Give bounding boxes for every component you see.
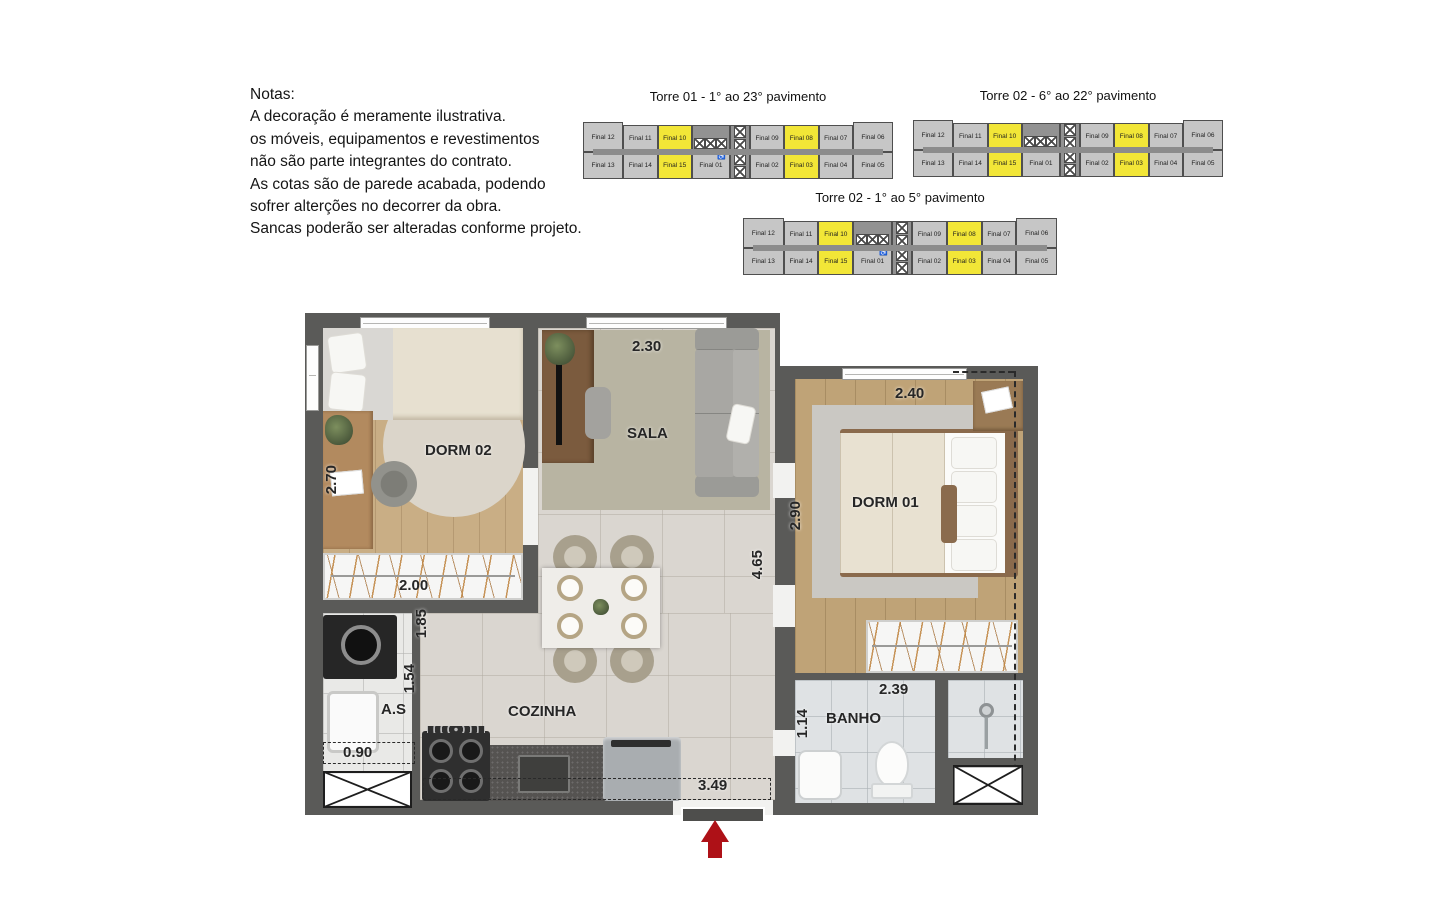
plate (557, 613, 583, 639)
unit-label: Final 12 (752, 230, 775, 237)
unit-label: Final 11 (959, 133, 982, 140)
tower-row: Final 12Final 11Final 10Final 09Final 08… (913, 123, 1223, 150)
tower3-title: Torre 02 - 1° ao 5° pavimento (743, 190, 1057, 205)
unit-cell: Final 02 (1080, 150, 1114, 177)
unit-cell-highlighted: Final 08 (1114, 123, 1148, 150)
stairs-x-icon (1046, 136, 1057, 147)
stairs-cell (692, 125, 730, 152)
pillow (951, 437, 997, 469)
unit-cell: Final 14 (623, 152, 657, 179)
plant-icon (545, 333, 575, 365)
notes-block: Notas: A decoração é meramente ilustrati… (250, 84, 610, 241)
corridor-strip (593, 149, 883, 155)
stairs-x-icon (1035, 136, 1046, 147)
sofa-seat (695, 349, 735, 477)
toilet-bowl (875, 741, 909, 787)
notes-line: As cotas são de parede acabada, podendo (250, 174, 610, 196)
dim-label: 0.90 (343, 744, 372, 761)
unit-cell-highlighted: Final 03 (947, 248, 982, 275)
unit-cell: Final 04 (1149, 150, 1183, 177)
unit-label: Final 10 (993, 133, 1016, 140)
entry-arrow-icon (701, 820, 729, 842)
dim-label: 2.70 (323, 465, 340, 494)
dim-label: 2.39 (879, 681, 908, 698)
unit-label: Final 01 (1029, 160, 1052, 167)
unit-label: Final 07 (824, 135, 847, 142)
unit-cell: ♿Final 01 (853, 248, 892, 275)
unit-label: Final 14 (959, 160, 982, 167)
room-label-dorm02: DORM 02 (425, 442, 492, 459)
unit-label: Final 06 (861, 134, 884, 141)
unit-label: Final 04 (824, 162, 847, 169)
unit-label: Final 04 (987, 258, 1010, 265)
tower1-title: Torre 01 - 1° ao 23° pavimento (583, 89, 893, 104)
unit-cell: Final 06 (853, 122, 893, 152)
dim-label: 2.40 (895, 385, 924, 402)
room-label-dorm01: DORM 01 (852, 494, 919, 511)
elevator-cell (730, 125, 750, 152)
stairs-x-icon (705, 138, 716, 149)
corridor-strip (753, 245, 1047, 251)
window (306, 345, 319, 411)
unit-cell-highlighted: Final 03 (784, 152, 818, 179)
tower1-diagram: Final 12Final 11Final 10Final 09Final 08… (583, 125, 893, 182)
pillow (951, 505, 997, 537)
corridor-strip (923, 147, 1213, 153)
unit-cell-highlighted: Final 10 (988, 123, 1022, 150)
plant-icon (325, 415, 353, 445)
unit-cell: Final 04 (819, 152, 853, 179)
tower-row: Final 12Final 11Final 10Final 09Final 08… (743, 221, 1057, 248)
unit-label: Final 09 (918, 231, 941, 238)
unit-label: Final 09 (755, 135, 778, 142)
shower-head-icon (979, 703, 994, 718)
unit-cell: Final 12 (743, 218, 784, 248)
unit-label: Final 03 (1120, 160, 1143, 167)
unit-cell: Final 07 (1149, 123, 1183, 150)
sofa-armrest (695, 475, 759, 497)
unit-label: Final 10 (663, 135, 686, 142)
plate (621, 613, 647, 639)
unit-label: Final 06 (1025, 230, 1048, 237)
unit-label: Final 13 (752, 258, 775, 265)
dorm01-closet (866, 620, 1018, 673)
unit-label: Final 14 (629, 162, 652, 169)
stairs-x-icon (694, 138, 705, 149)
tower-row: Final 12Final 11Final 10Final 09Final 08… (583, 125, 893, 152)
unit-label: Final 05 (861, 162, 884, 169)
unit-cell: Final 04 (982, 248, 1017, 275)
unit-cell-highlighted: Final 15 (988, 150, 1022, 177)
unit-cell: Final 02 (750, 152, 784, 179)
tower-row: Final 13Final 14Final 15♿Final 01Final 0… (743, 248, 1057, 275)
unit-cell: ♿Final 01 (692, 152, 730, 179)
stove-knobs (427, 726, 485, 733)
unit-label: Final 02 (755, 162, 778, 169)
unit-label: Final 07 (1154, 133, 1177, 140)
projection-dashed-line (1014, 371, 1016, 801)
unit-label: Final 13 (922, 160, 945, 167)
unit-cell: Final 05 (1183, 150, 1223, 177)
unit-label: Final 08 (790, 135, 813, 142)
unit-label: Final 07 (987, 231, 1010, 238)
unit-cell-highlighted: Final 15 (818, 248, 853, 275)
elevator-cell (892, 248, 912, 275)
room-label-cozinha: COZINHA (508, 703, 576, 720)
notes-line: Sancas poderão ser alteradas conforme pr… (250, 218, 610, 240)
floor-plan: DORM 02 SALA DORM 01 COZINHA A.S BANHO 2… (305, 313, 1040, 815)
unit-cell-highlighted: Final 08 (947, 221, 982, 248)
dim-label: 1.85 (413, 609, 430, 638)
unit-label: Final 05 (1191, 160, 1214, 167)
elevator-cell (730, 152, 750, 179)
elevator-cell (1060, 123, 1080, 150)
tower-row: Final 13Final 14Final 15Final 01Final 02… (913, 150, 1223, 177)
stairs-x-icon (878, 234, 889, 245)
door-opening-dorm02 (523, 468, 538, 545)
unit-label: Final 15 (663, 162, 686, 169)
unit-cell: Final 05 (853, 152, 893, 179)
projection-dashed-line (953, 371, 1014, 373)
unit-cell: Final 06 (1183, 120, 1223, 150)
dim-label: 2.90 (787, 501, 804, 530)
table-plant-icon (593, 599, 609, 615)
unit-label: Final 03 (790, 162, 813, 169)
door-opening-bathroom (773, 730, 795, 756)
pillow (951, 471, 997, 503)
elevator-x-icon (734, 126, 746, 138)
unit-cell: Final 13 (913, 150, 953, 177)
room-label-sala: SALA (627, 425, 668, 442)
elevator-x-icon (896, 262, 908, 274)
door-opening (773, 463, 795, 498)
dim-label: 4.65 (749, 550, 766, 579)
stairs-cell (1022, 123, 1060, 150)
tower3-diagram: Final 12Final 11Final 10Final 09Final 08… (743, 221, 1057, 281)
plate (557, 575, 583, 601)
dim-label: 2.30 (632, 338, 661, 355)
elevator-x-icon (1064, 124, 1076, 136)
unit-label: Final 13 (592, 162, 615, 169)
unit-label: Final 01 (861, 258, 884, 265)
unit-cell: Final 12 (583, 122, 623, 152)
unit-cell: Final 12 (913, 120, 953, 150)
pillow (951, 539, 997, 571)
elevator-cell (1060, 150, 1080, 177)
unit-label: Final 10 (824, 231, 847, 238)
shower-arm (985, 717, 988, 749)
unit-label: Final 02 (1085, 160, 1108, 167)
door-opening-dorm01 (773, 585, 795, 627)
unit-label: Final 11 (790, 231, 813, 238)
pillow (327, 332, 368, 375)
bed-runner (941, 485, 957, 543)
tower-row: Final 13Final 14Final 15♿Final 01Final 0… (583, 152, 893, 179)
unit-label: Final 08 (953, 231, 976, 238)
entry-arrow-stem (708, 840, 722, 858)
unit-label: Final 02 (918, 258, 941, 265)
stairs-x-icon (856, 234, 867, 245)
notes-line: os móveis, equipamentos e revestimentos (250, 129, 610, 151)
room-label-banho: BANHO (826, 710, 881, 727)
window (842, 368, 967, 380)
unit-cell: Final 07 (982, 221, 1017, 248)
unit-cell-highlighted: Final 10 (658, 125, 692, 152)
unit-label: Final 12 (922, 132, 945, 139)
unit-cell: Final 07 (819, 125, 853, 152)
stairs-cell (853, 221, 892, 248)
elevator-x-icon (896, 222, 908, 234)
unit-label: Final 14 (790, 258, 813, 265)
unit-label: Final 01 (699, 162, 722, 169)
plate (621, 575, 647, 601)
fridge-handle (611, 740, 671, 747)
unit-cell: Final 13 (583, 152, 623, 179)
unit-label: Final 06 (1191, 132, 1214, 139)
notes-line: não são parte integrantes do contrato. (250, 151, 610, 173)
pillow (327, 371, 367, 413)
unit-cell-highlighted: Final 15 (658, 152, 692, 179)
toilet-tank (871, 783, 913, 799)
unit-cell: Final 09 (750, 125, 784, 152)
unit-cell: Final 01 (1022, 150, 1060, 177)
unit-cell: Final 14 (784, 248, 819, 275)
room-label-as: A.S (381, 701, 406, 718)
notes-title: Notas: (250, 84, 610, 106)
elevator-cell (892, 221, 912, 248)
ottoman (585, 387, 611, 439)
notes-line: A decoração é meramente ilustrativa. (250, 106, 610, 128)
burner (459, 739, 483, 763)
unit-label: Final 15 (993, 160, 1016, 167)
unit-cell: Final 11 (623, 125, 657, 152)
unit-cell: Final 09 (1080, 123, 1114, 150)
unit-cell-highlighted: Final 03 (1114, 150, 1148, 177)
desk-chair (371, 461, 417, 507)
notes-line: sofrer alterções no decorrer da obra. (250, 196, 610, 218)
stairs-x-icon (867, 234, 878, 245)
shaft-crossed-box (323, 771, 412, 808)
burner (429, 739, 453, 763)
unit-cell-highlighted: Final 10 (818, 221, 853, 248)
unit-label: Final 15 (824, 258, 847, 265)
unit-label: Final 11 (629, 135, 652, 142)
unit-cell: Final 11 (953, 123, 987, 150)
unit-label: Final 12 (592, 134, 615, 141)
dim-label: 2.00 (399, 577, 428, 594)
bathroom-sink (798, 750, 842, 800)
dim-label: 1.54 (401, 664, 418, 693)
dim-label: 1.14 (794, 709, 811, 738)
unit-cell: Final 06 (1016, 218, 1057, 248)
unit-cell: Final 02 (912, 248, 947, 275)
shaft-crossed-box (953, 765, 1023, 805)
elevator-x-icon (1064, 164, 1076, 176)
unit-cell: Final 05 (1016, 248, 1057, 275)
tower2-title: Torre 02 - 6° ao 22° pavimento (913, 88, 1223, 103)
unit-label: Final 05 (1025, 258, 1048, 265)
unit-cell-highlighted: Final 08 (784, 125, 818, 152)
washing-machine-door (341, 625, 381, 665)
unit-label: Final 09 (1085, 133, 1108, 140)
unit-cell: Final 13 (743, 248, 784, 275)
stairs-x-icon (1024, 136, 1035, 147)
unit-cell: Final 14 (953, 150, 987, 177)
tower2-diagram: Final 12Final 11Final 10Final 09Final 08… (913, 123, 1223, 180)
unit-label: Final 04 (1154, 160, 1177, 167)
unit-label: Final 08 (1120, 133, 1143, 140)
dim-label: 3.49 (698, 777, 727, 794)
stairs-x-icon (716, 138, 727, 149)
unit-cell: Final 09 (912, 221, 947, 248)
unit-cell: Final 11 (784, 221, 819, 248)
tv (556, 363, 562, 445)
elevator-x-icon (734, 166, 746, 178)
unit-label: Final 03 (953, 258, 976, 265)
